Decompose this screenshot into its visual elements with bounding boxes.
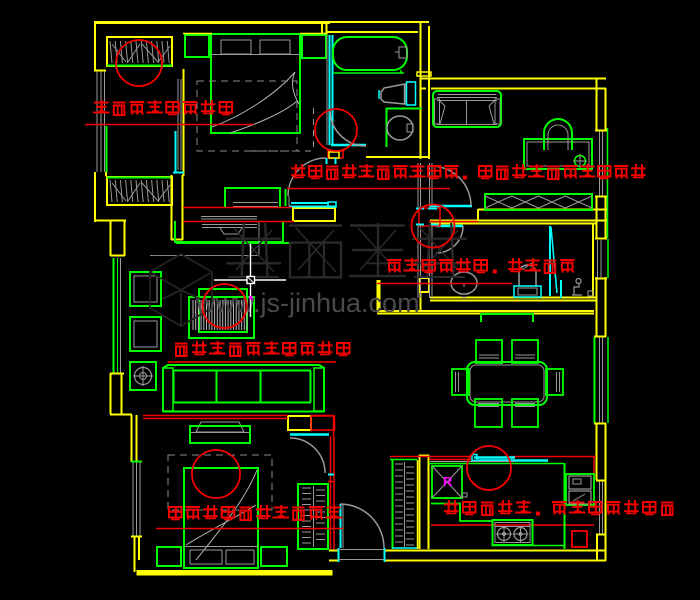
svg-text:www.js-jinhua.com: www.js-jinhua.com (195, 288, 420, 318)
svg-text:R: R (443, 474, 453, 489)
